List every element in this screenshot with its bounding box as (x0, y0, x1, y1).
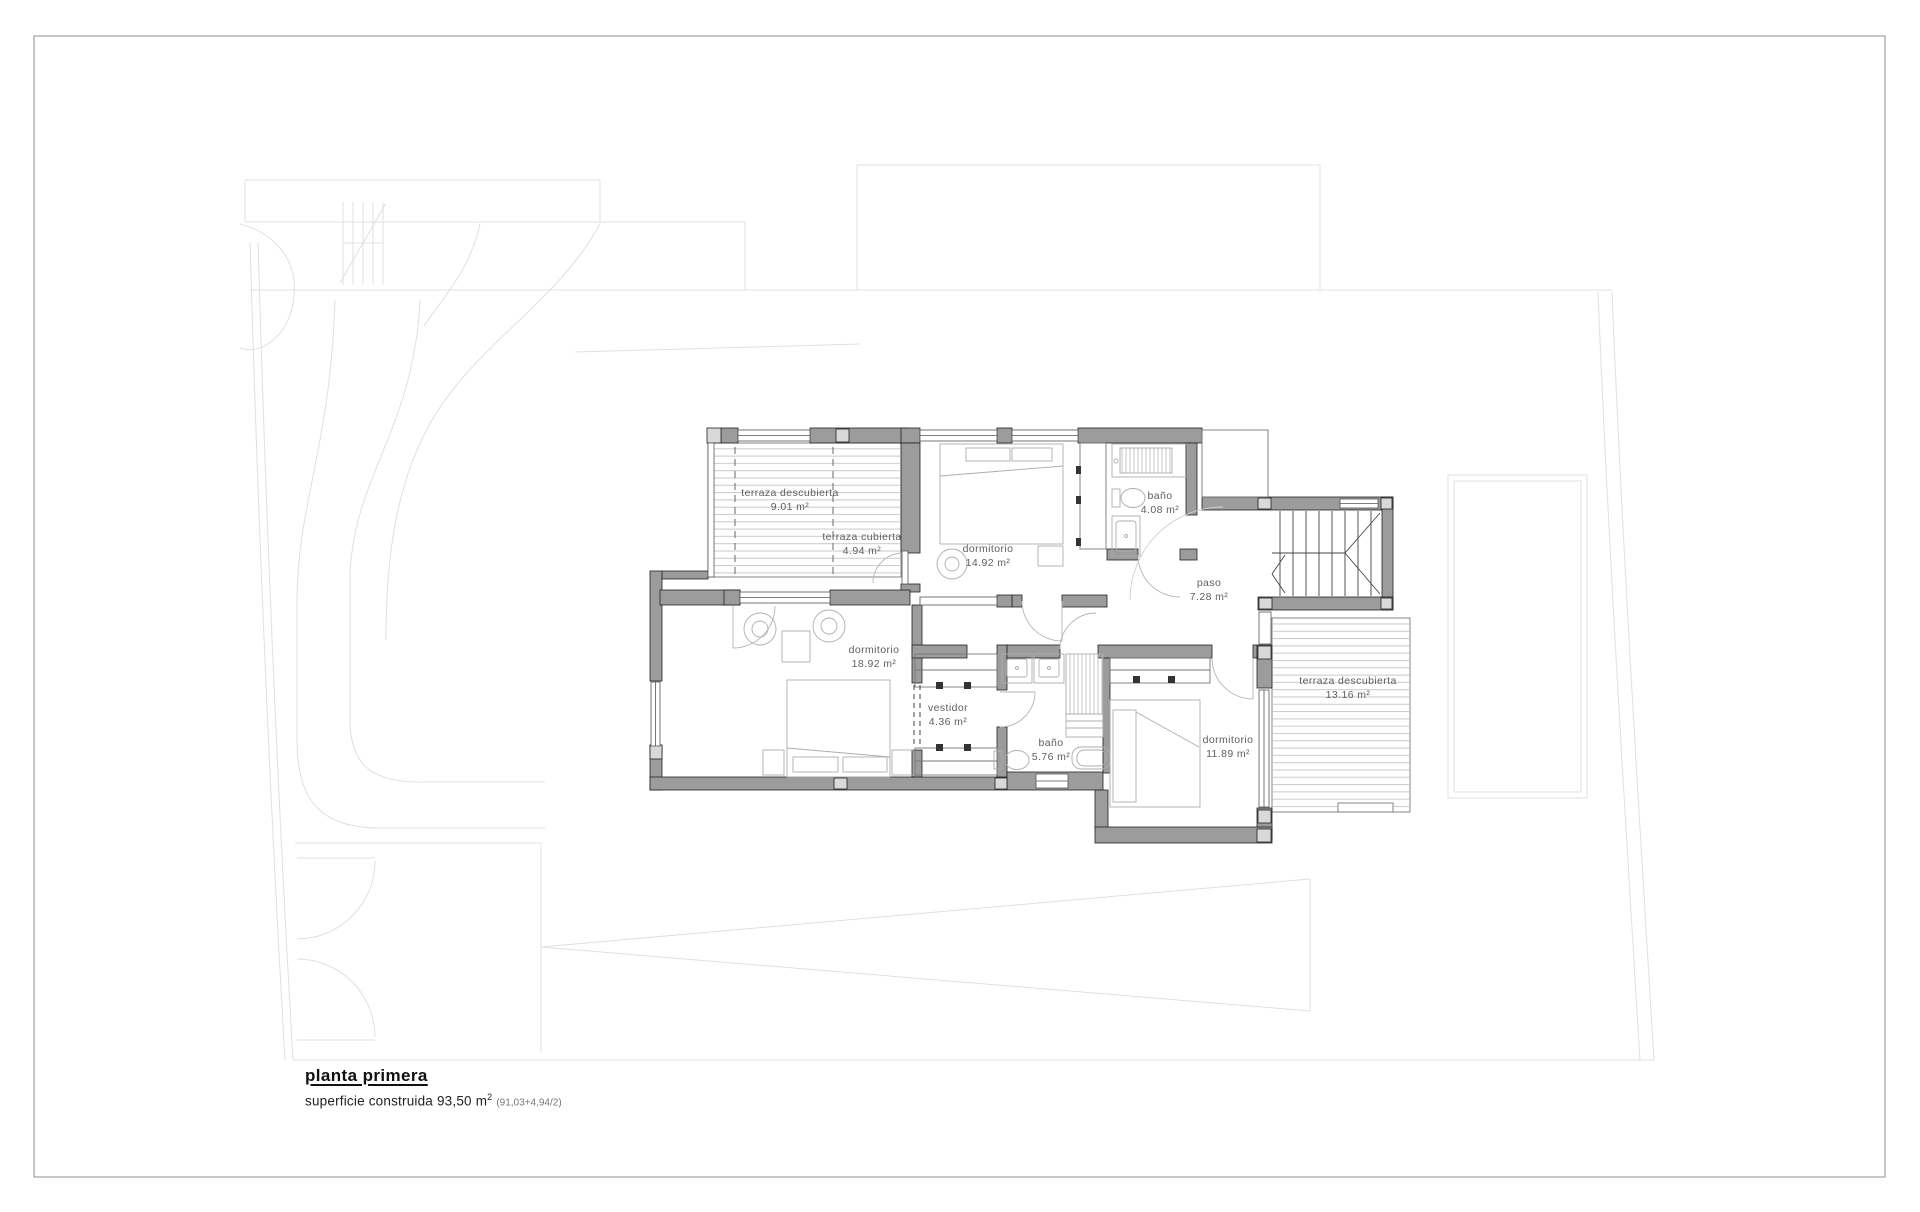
sliding-opening (914, 685, 920, 748)
room-name: baño (1141, 489, 1179, 503)
room-name: baño (1032, 736, 1070, 750)
room-name: paso (1190, 576, 1228, 590)
room-area: 14.92 m² (963, 556, 1014, 570)
room-area: 7.28 m² (1190, 590, 1228, 604)
room-label-dormitorio-norte: dormitorio 14.92 m² (963, 542, 1014, 570)
room-name: dormitorio (1203, 733, 1254, 747)
room-label-dormitorio-principal: dormitorio 18.92 m² (849, 643, 900, 671)
room-label-vestidor: vestidor 4.36 m² (928, 701, 968, 729)
closet-icon (1080, 443, 1106, 549)
door-arc (1000, 692, 1035, 727)
room-area: 18.92 m² (849, 657, 900, 671)
room-area: 4.36 m² (928, 715, 968, 729)
room-area: 5.76 m² (1032, 750, 1070, 764)
table-icon (782, 631, 810, 662)
door-arc (733, 606, 775, 648)
room-name: terraza cubierta (822, 530, 901, 544)
sheet-border (34, 36, 1885, 1177)
room-area: 13.16 m² (1299, 688, 1396, 702)
bathtub-icon (1112, 444, 1187, 477)
bed-icon (1110, 700, 1200, 807)
room-area: 4.94 m² (822, 544, 901, 558)
built-area-sup: 2 (487, 1092, 492, 1102)
room-area: 9.01 m² (741, 500, 838, 514)
plan-title: planta primera (305, 1066, 562, 1086)
wardrobe-icon (915, 654, 997, 687)
drawing-sheet: terraza descubierta 9.01 m² terraza cubi… (0, 0, 1920, 1212)
room-name: dormitorio (963, 542, 1014, 556)
door-arc (1022, 601, 1062, 641)
door-arc (1212, 658, 1253, 699)
site-underlay (240, 165, 1654, 1060)
closet-icon (1110, 658, 1210, 683)
terrace-step (1338, 803, 1393, 812)
wardrobe-icon (915, 748, 997, 775)
shower-icon (1066, 654, 1103, 737)
room-name: terraza descubierta (741, 486, 838, 500)
room-label-terraza-descubierta-oeste: terraza descubierta 9.01 m² (741, 486, 838, 514)
built-area-note: (91,03+4,94/2) (496, 1098, 561, 1109)
room-area: 11.89 m² (1203, 747, 1254, 761)
room-label-bano-principal: baño 5.76 m² (1032, 736, 1070, 764)
room-label-terraza-cubierta: terraza cubierta 4.94 m² (822, 530, 901, 558)
room-label-paso: paso 7.28 m² (1190, 576, 1228, 604)
bed-icon (763, 680, 913, 777)
built-area-line: superficie construida 93,50 m2 (91,03+4,… (305, 1092, 562, 1109)
terrace-east-hatch (1273, 620, 1409, 810)
room-label-bano-norte: baño 4.08 m² (1141, 489, 1179, 517)
room-label-terraza-descubierta-este: terraza descubierta 13.16 m² (1299, 674, 1396, 702)
door-arc (1060, 613, 1096, 649)
title-block: planta primera superficie construida 93,… (305, 1066, 562, 1109)
room-label-dormitorio-este: dormitorio 11.89 m² (1203, 733, 1254, 761)
armchair-icon (744, 610, 845, 662)
closet-nubs (936, 466, 1175, 751)
door-arc (1138, 555, 1180, 597)
floor-plan-drawing (0, 0, 1920, 1212)
staircase (1272, 511, 1380, 596)
room-name: dormitorio (849, 643, 900, 657)
roof-void (1202, 430, 1268, 497)
built-area-text: superficie construida 93,50 m (305, 1094, 487, 1109)
room-name: terraza descubierta (1299, 674, 1396, 688)
room-name: vestidor (928, 701, 968, 715)
room-area: 4.08 m² (1141, 503, 1179, 517)
